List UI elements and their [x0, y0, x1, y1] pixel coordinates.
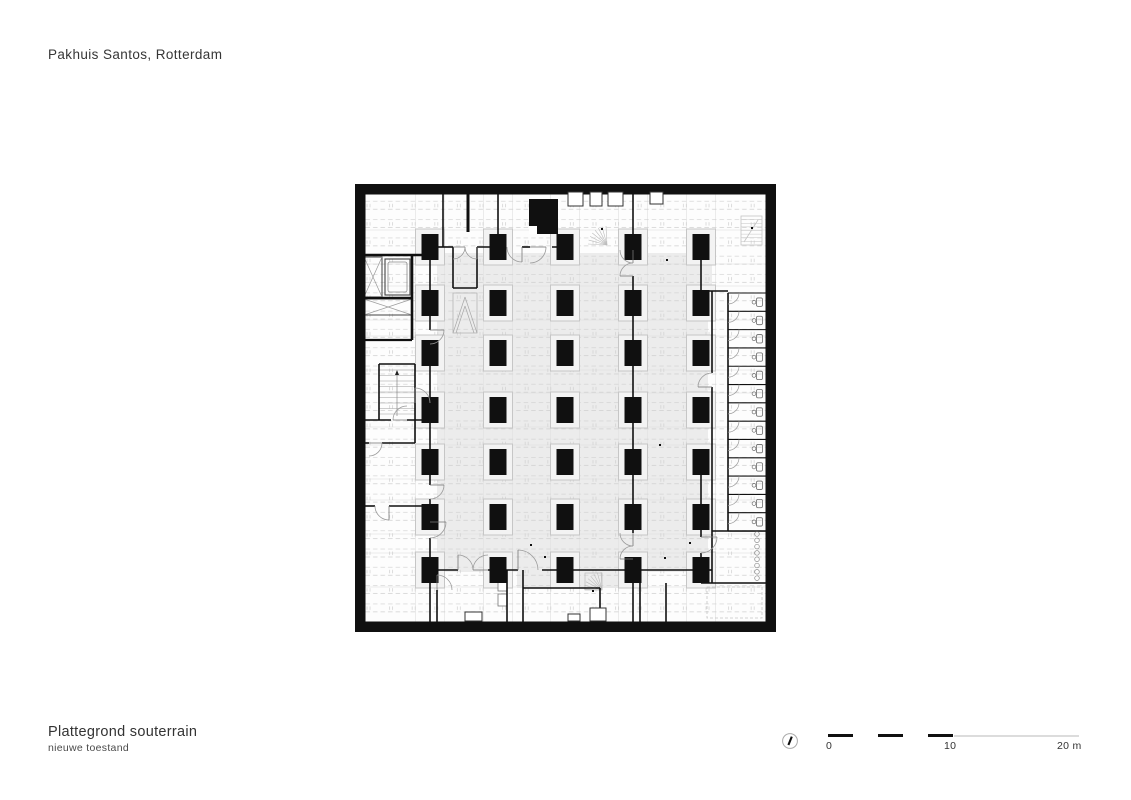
scale-bar-segment [828, 734, 853, 737]
scale-label-10: 10 [944, 740, 956, 752]
closet-box [498, 594, 507, 606]
column [422, 557, 439, 583]
scale-bar-line [954, 735, 1080, 736]
column [693, 234, 710, 260]
column [693, 290, 710, 316]
wall-niche [590, 192, 602, 206]
column [557, 290, 574, 316]
drawing-sheet: Pakhuis Santos, Rotterdam Plattegrond so… [0, 0, 1131, 800]
column [422, 234, 439, 260]
column [490, 234, 507, 260]
column [557, 340, 574, 366]
drawing-title: Plattegrond souterrain [48, 724, 197, 740]
marker-dot [664, 557, 666, 559]
shaft-notch [529, 226, 537, 234]
page-title: Pakhuis Santos, Rotterdam [48, 47, 222, 62]
scale-label-20m: 20 m [1057, 740, 1082, 752]
column [490, 397, 507, 423]
wall-box [590, 608, 606, 621]
outer-wall-top [355, 184, 776, 195]
wall-niche [650, 192, 663, 204]
column [625, 557, 642, 583]
column [625, 449, 642, 475]
column [490, 504, 507, 530]
marker-dot [689, 542, 691, 544]
marker-dot [592, 590, 594, 592]
scale-label-0: 0 [826, 740, 832, 752]
outer-wall-right [766, 184, 777, 632]
column [490, 449, 507, 475]
outer-wall-left [355, 184, 366, 632]
column [693, 340, 710, 366]
drawing-subtitle: nieuwe toestand [48, 742, 197, 754]
column [625, 290, 642, 316]
column [490, 557, 507, 583]
column [693, 449, 710, 475]
marker-dot [659, 444, 661, 446]
column [557, 234, 574, 260]
column [557, 449, 574, 475]
scale-bar-segment [878, 734, 903, 737]
scale-bar: 0 10 20 m [828, 732, 1086, 754]
wall-niche [608, 192, 623, 206]
column [557, 504, 574, 530]
scale-bar-segment [928, 734, 953, 737]
closet-box [498, 582, 507, 591]
column [422, 449, 439, 475]
column [422, 504, 439, 530]
column [693, 504, 710, 530]
marker-dot [751, 227, 753, 229]
column [557, 397, 574, 423]
marker-dot [544, 556, 546, 558]
north-arrow-icon [781, 732, 799, 750]
wall-box [465, 612, 482, 621]
column [490, 340, 507, 366]
column [557, 557, 574, 583]
column [693, 397, 710, 423]
title-block: Plattegrond souterrain nieuwe toestand [48, 724, 197, 754]
column [625, 504, 642, 530]
marker-dot [601, 228, 603, 230]
column [693, 557, 710, 583]
marker-dot [666, 259, 668, 261]
floor-plan-svg [355, 184, 776, 632]
wall-niche [568, 192, 583, 206]
column [490, 290, 507, 316]
wall-box [568, 614, 580, 621]
column [625, 397, 642, 423]
outer-wall-bottom [355, 622, 776, 633]
floor-plan [355, 184, 776, 632]
column [422, 290, 439, 316]
column [625, 340, 642, 366]
marker-dot [530, 544, 532, 546]
